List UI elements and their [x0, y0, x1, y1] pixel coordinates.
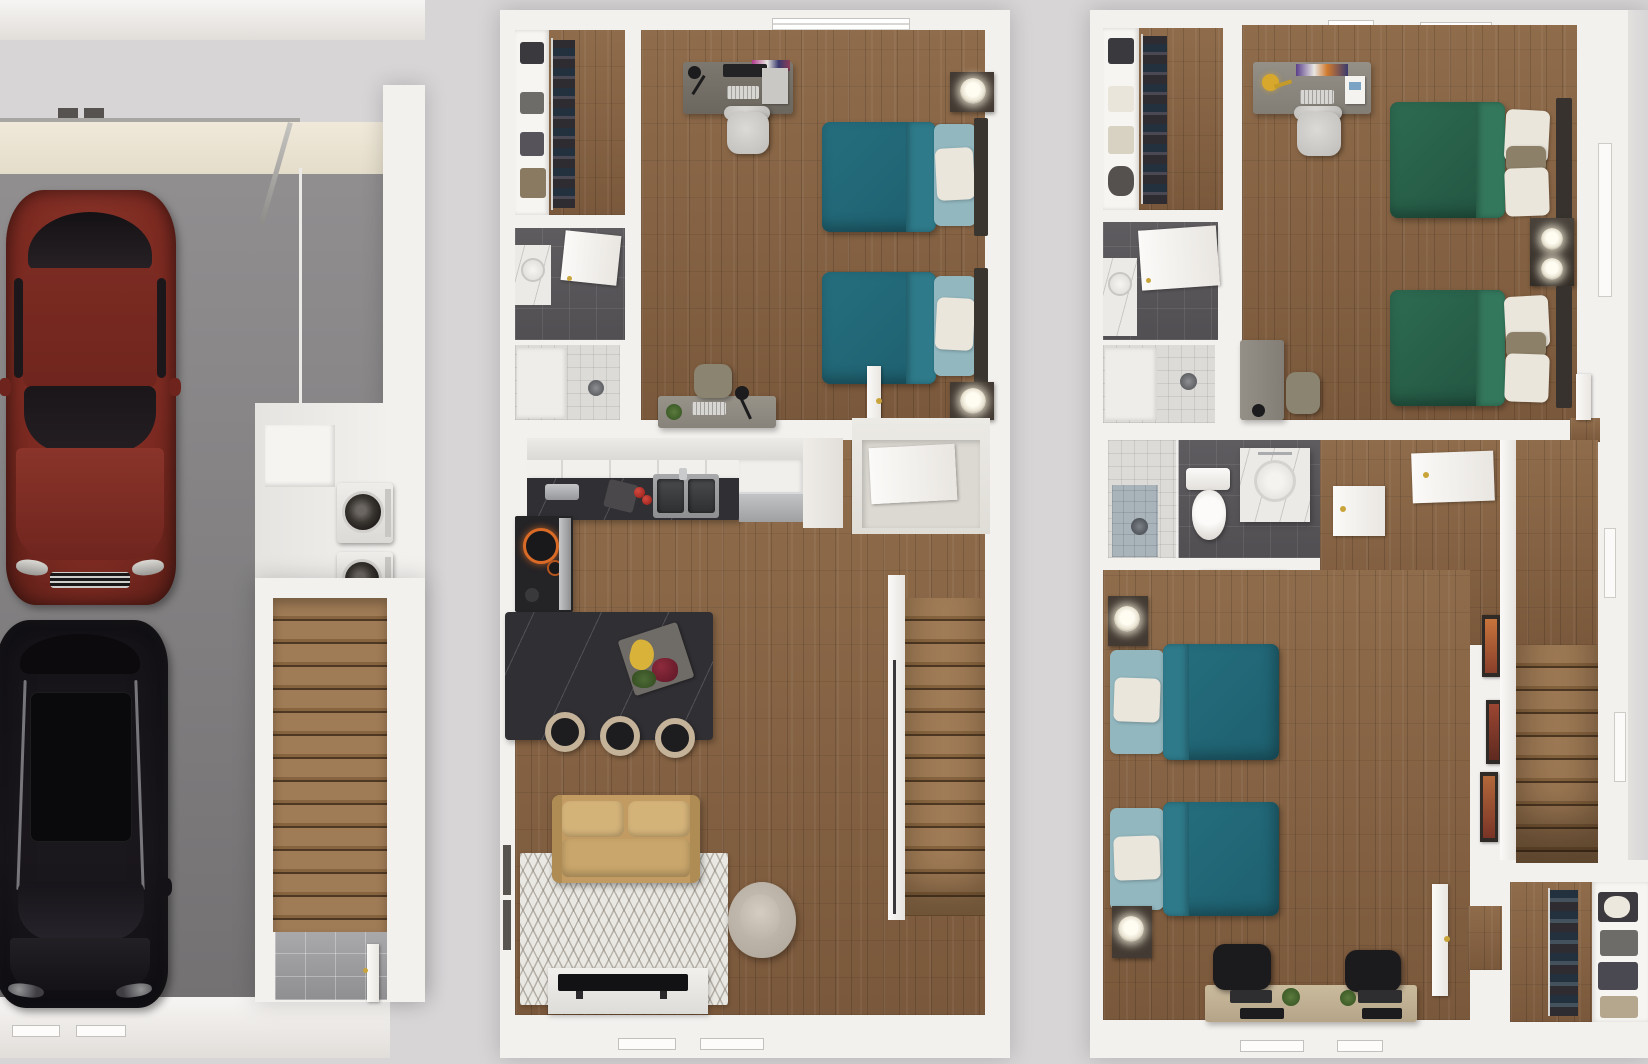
bedroom-floor [1103, 570, 1470, 1020]
toaster [545, 484, 579, 500]
car-mirror [169, 378, 181, 396]
hanging-clothes [1143, 36, 1167, 204]
office-chair-black [1213, 944, 1271, 990]
garage-top-wall [0, 0, 425, 40]
washer-controls [385, 489, 391, 537]
folded-clothes [520, 92, 544, 114]
door-knob [1444, 936, 1450, 942]
range [515, 516, 573, 612]
staircase [905, 598, 985, 916]
bathroom-vanity [1103, 258, 1137, 336]
folded-clothes [1108, 86, 1134, 112]
armchair-seat [740, 894, 780, 940]
back-cushion [562, 801, 624, 837]
headboard [1556, 286, 1572, 408]
window [1240, 1040, 1304, 1052]
desk-plant [1340, 990, 1356, 1006]
side-window [1598, 143, 1612, 297]
table-lamp [1541, 228, 1563, 250]
car-mirror [160, 878, 172, 896]
burner-lit [523, 528, 559, 564]
door-knob [1423, 472, 1429, 478]
bed-green-2 [1390, 286, 1572, 410]
floorplan-render [0, 0, 1648, 1064]
exterior-shade [1628, 10, 1648, 860]
garage-window [12, 1025, 60, 1037]
bed-teal-3 [1103, 644, 1279, 762]
duvet-fold [1476, 290, 1505, 406]
hanging-clothes [553, 40, 575, 208]
sink-basin [657, 479, 684, 513]
office-chair-black [1345, 950, 1401, 992]
handrail [893, 660, 896, 914]
pantry-wall [803, 438, 843, 528]
sink-basin [1254, 460, 1296, 502]
side-window [1614, 712, 1626, 782]
keyboard-dark [1358, 990, 1402, 1003]
folded-clothes [1108, 38, 1134, 64]
toilet-bowl [1192, 490, 1226, 540]
staircase [1516, 645, 1598, 863]
armrest [552, 795, 562, 883]
bar-stool [655, 718, 695, 758]
sink-basin [521, 258, 545, 282]
keyboard-dark [1230, 990, 1272, 1003]
desk-plant [666, 404, 682, 420]
car-grille [50, 572, 130, 588]
television [558, 974, 688, 991]
red-sedan [6, 190, 176, 605]
entry-closet-door [869, 444, 958, 504]
window [700, 1038, 764, 1050]
faucet [1258, 452, 1292, 455]
shower-bench [517, 348, 567, 418]
desk-lamp-black [1252, 404, 1265, 417]
monitor [1240, 1008, 1284, 1019]
keyboard [692, 402, 726, 415]
bed-green-1 [1390, 98, 1572, 222]
side-window [1604, 528, 1616, 598]
desk-lamp-black [688, 66, 701, 79]
office-chair [1297, 112, 1341, 156]
folded-clothes [520, 42, 544, 64]
car-hood [10, 938, 150, 990]
desk-lamp-yellow [1262, 74, 1279, 91]
car-side-glass [157, 278, 166, 378]
wall-art [1480, 772, 1498, 842]
kitchen-back-wall [500, 438, 810, 462]
doorway-opening [1570, 418, 1600, 442]
shower-head [1131, 518, 1148, 535]
sink-basin [688, 479, 715, 513]
door-knob [1340, 506, 1346, 512]
dishwasher [739, 492, 803, 522]
hanging-clothes [1550, 890, 1578, 1016]
office-chair [727, 112, 769, 154]
side-window [503, 900, 511, 950]
pillow-white [1113, 835, 1161, 881]
folded-clothes [520, 132, 544, 156]
bedroom-door [867, 366, 881, 424]
car-roof [23, 268, 157, 388]
seat-cushions [562, 839, 690, 877]
shower-bench [1105, 348, 1157, 420]
faucet [679, 468, 687, 480]
storage-box [1598, 892, 1638, 922]
pillow-white [935, 147, 976, 201]
garage-door-hardware [84, 108, 104, 118]
back-cushion [628, 801, 690, 837]
stair-rail-wall [1500, 440, 1516, 860]
monitor [723, 64, 767, 77]
art-print [1485, 619, 1497, 673]
table-lamp [960, 78, 986, 104]
art-print [1489, 704, 1499, 760]
car-sunroof [30, 692, 132, 842]
garage-door-panel [0, 122, 385, 174]
folded-clothes [520, 168, 546, 198]
armchair [728, 882, 796, 958]
range-knob [525, 588, 539, 602]
bed-teal-2 [822, 268, 988, 390]
garage-window [76, 1025, 126, 1037]
car-windshield [18, 882, 144, 940]
pillow-white [1504, 353, 1550, 403]
keyboard [727, 86, 759, 99]
cabinet-column [739, 460, 803, 494]
table-lamp [1541, 258, 1563, 280]
door-knob [363, 968, 368, 973]
folded-clothes [1598, 962, 1638, 990]
pillow-white [1113, 677, 1161, 723]
black-suv [0, 620, 168, 1008]
headboard [974, 118, 988, 236]
bedroom-door [1576, 374, 1591, 420]
duvet-fold [1163, 802, 1189, 916]
tv-leg [660, 991, 667, 999]
headboard [974, 268, 988, 386]
car-windshield [24, 386, 156, 452]
tv-leg [576, 991, 583, 999]
duvet-fold [906, 272, 936, 384]
table-lamp [1118, 916, 1144, 942]
desk-plant [1282, 988, 1300, 1006]
car-hood [16, 448, 164, 560]
garage-door-hardware [58, 108, 78, 118]
books-on-desk [1296, 64, 1348, 76]
monitor [1362, 1008, 1402, 1019]
car-mirror [0, 378, 11, 396]
door-knob [876, 398, 882, 404]
duvet-fold [906, 122, 936, 232]
door-knob [1146, 278, 1151, 283]
washer [337, 483, 393, 543]
table-lamp [1114, 606, 1140, 632]
wall-art [1482, 615, 1500, 677]
pillow-white [935, 297, 976, 351]
car-side-glass [14, 278, 23, 378]
garage-door-track [0, 118, 300, 122]
shower-glass [1176, 440, 1179, 558]
duvet-fold [1476, 102, 1505, 218]
table-lamp [960, 388, 986, 414]
shower-drain [1180, 373, 1197, 390]
folded-clothes [1600, 930, 1638, 956]
bar-stool [545, 712, 585, 752]
armrest [690, 795, 700, 883]
loveseat [552, 795, 700, 883]
pillow-in-box [1604, 896, 1630, 918]
toilet-tank [1186, 468, 1230, 490]
desk-chair-olive [694, 364, 732, 398]
headboard [1556, 98, 1572, 222]
window [1337, 1040, 1383, 1052]
doorway-opening [1468, 906, 1502, 970]
stair-rail-wall [888, 575, 905, 920]
folded-clothes [1108, 126, 1134, 154]
tomato [642, 495, 652, 505]
window [618, 1038, 676, 1050]
garage-staircase [273, 598, 387, 932]
sink-basin [1108, 272, 1132, 296]
greens [632, 670, 656, 688]
hat [1108, 166, 1134, 196]
door-knob [567, 276, 572, 281]
folded-clothes [1600, 996, 1638, 1018]
entry-door [367, 944, 379, 1002]
shower-drain [588, 380, 604, 396]
side-window [503, 845, 511, 895]
duvet-fold [1163, 644, 1189, 760]
bed-teal-1 [822, 116, 988, 236]
bar-stool [600, 716, 640, 756]
range-handle [559, 518, 571, 610]
laundry-cabinet [265, 425, 335, 487]
bed-teal-4 [1103, 800, 1279, 918]
papers [762, 68, 788, 104]
art-print [1483, 776, 1495, 838]
poster-print [1349, 82, 1361, 90]
desk-chair-olive [1286, 372, 1320, 414]
keyboard [1300, 90, 1334, 104]
pillow-white [1504, 167, 1550, 217]
poster [1345, 76, 1365, 104]
washer-door [342, 491, 384, 533]
